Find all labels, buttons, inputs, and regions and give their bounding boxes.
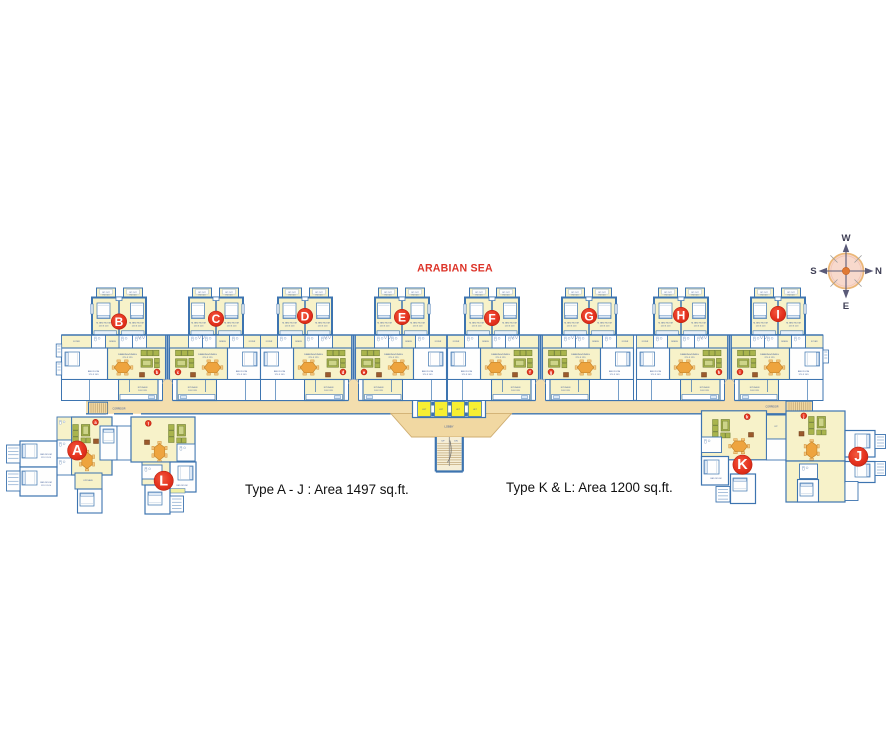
svg-text:Type A - J : Area 1497 sq.ft.: Type A - J : Area 1497 sq.ft. — [245, 482, 409, 497]
svg-text:SIT OUT: SIT OUT — [787, 292, 795, 294]
svg-text:M. BED ROOM: M. BED ROOM — [502, 323, 516, 325]
svg-text:KITCHEN: KITCHEN — [138, 387, 148, 389]
svg-text:12'0 X 10'0: 12'0 X 10'0 — [462, 374, 473, 376]
svg-text:b: b — [156, 370, 159, 375]
svg-text:E: E — [843, 301, 850, 312]
svg-text:CORRIDOR: CORRIDOR — [765, 406, 778, 409]
svg-text:FOYER: FOYER — [622, 341, 629, 343]
svg-text:SIT OUT: SIT OUT — [384, 292, 392, 294]
svg-text:KITCHEN: KITCHEN — [324, 387, 334, 389]
svg-text:DRAWING/DINING: DRAWING/DINING — [680, 353, 699, 356]
svg-text:8'0 X 4'0: 8'0 X 4'0 — [199, 295, 206, 297]
svg-text:12'0 X 10'0: 12'0 X 10'0 — [610, 374, 621, 376]
svg-text:BED ROOM: BED ROOM — [177, 485, 188, 487]
svg-text:I: I — [776, 308, 779, 322]
svg-text:DRESS: DRESS — [781, 341, 788, 343]
svg-text:SIT OUT: SIT OUT — [225, 292, 233, 294]
svg-text:UP: UP — [441, 441, 445, 443]
svg-text:BED ROOM: BED ROOM — [40, 482, 52, 484]
svg-text:FOYER: FOYER — [642, 341, 649, 343]
svg-text:SIT OUT: SIT OUT — [475, 292, 483, 294]
svg-text:SIT OUT: SIT OUT — [288, 292, 296, 294]
svg-text:DRAWING/DINING: DRAWING/DINING — [760, 353, 779, 356]
svg-text:N: N — [875, 266, 882, 277]
svg-text:KITCHEN: KITCHEN — [511, 387, 521, 389]
svg-text:C: C — [212, 312, 221, 326]
svg-text:8'0 X 4'0: 8'0 X 4'0 — [226, 295, 233, 297]
svg-text:KITCHEN: KITCHEN — [700, 387, 710, 389]
svg-text:E: E — [398, 311, 406, 325]
svg-text:h: h — [718, 370, 721, 375]
svg-text:12'0 X 11'0: 12'0 X 11'0 — [285, 325, 296, 327]
svg-text:M. BED ROOM: M. BED ROOM — [129, 323, 143, 325]
svg-text:KITCHEN: KITCHEN — [83, 480, 93, 482]
svg-text:8'0 X 4'0: 8'0 X 4'0 — [476, 295, 483, 297]
svg-text:8'0 X 4'0: 8'0 X 4'0 — [572, 295, 579, 297]
svg-text:FOYER: FOYER — [435, 341, 442, 343]
svg-text:g: g — [550, 370, 553, 375]
svg-text:12'0 X 11'0: 12'0 X 11'0 — [756, 325, 767, 327]
svg-text:12'0 X 11'0: 12'0 X 11'0 — [567, 325, 578, 327]
svg-text:KITCHEN: KITCHEN — [561, 387, 571, 389]
svg-text:H: H — [677, 309, 686, 323]
svg-text:22'0 X 12'0: 22'0 X 12'0 — [123, 357, 134, 359]
svg-text:A: A — [72, 443, 83, 459]
svg-text:SIT OUT: SIT OUT — [102, 292, 110, 294]
svg-text:10'0 X 8'0: 10'0 X 8'0 — [374, 390, 384, 392]
svg-text:LOBBY: LOBBY — [444, 425, 453, 429]
svg-text:Type K & L: Area 1200 sq.ft.: Type K & L: Area 1200 sq.ft. — [506, 480, 673, 495]
svg-text:M. BED ROOM: M. BED ROOM — [96, 323, 110, 325]
svg-text:KITCHEN: KITCHEN — [374, 387, 384, 389]
svg-text:DRESS: DRESS — [295, 341, 302, 343]
svg-text:12'0 X 10'0: 12'0 X 10'0 — [651, 374, 662, 376]
svg-text:BED ROOM: BED ROOM — [422, 371, 434, 373]
svg-text:FOYER: FOYER — [73, 341, 80, 343]
svg-text:10'0 X 8'0: 10'0 X 8'0 — [700, 390, 710, 392]
svg-text:BED ROOM: BED ROOM — [609, 371, 621, 373]
svg-text:SIT OUT: SIT OUT — [129, 292, 137, 294]
svg-text:M. BED ROOM: M. BED ROOM — [597, 323, 611, 325]
svg-text:22'0 X 12'0: 22'0 X 12'0 — [496, 357, 507, 359]
svg-text:K: K — [737, 457, 748, 473]
svg-text:BED ROOM: BED ROOM — [88, 371, 100, 373]
svg-text:8'0 X 4'0: 8'0 X 4'0 — [788, 295, 795, 297]
svg-text:KITCHEN: KITCHEN — [750, 387, 760, 389]
svg-text:L: L — [159, 473, 168, 489]
svg-text:12'0 X 11'0: 12'0 X 11'0 — [318, 325, 329, 327]
svg-text:12'0 X 11'0: 12'0 X 11'0 — [380, 325, 391, 327]
svg-text:DRESS: DRESS — [592, 341, 599, 343]
svg-text:DRESS: DRESS — [219, 341, 226, 343]
svg-text:BED ROOM: BED ROOM — [40, 454, 52, 456]
svg-text:SIT OUT: SIT OUT — [571, 292, 579, 294]
svg-text:M. BED ROOM: M. BED ROOM — [691, 323, 705, 325]
svg-text:M. BED ROOM: M. BED ROOM — [564, 323, 578, 325]
svg-text:M. BED ROOM: M. BED ROOM — [753, 323, 767, 325]
svg-text:j: j — [802, 414, 804, 419]
svg-text:M. BED ROOM: M. BED ROOM — [315, 323, 329, 325]
svg-text:M. BED ROOM: M. BED ROOM — [377, 323, 391, 325]
svg-text:DRAWING/DINING: DRAWING/DINING — [304, 353, 323, 356]
svg-text:22'0 X 12'0: 22'0 X 12'0 — [576, 357, 587, 359]
svg-text:l: l — [148, 421, 149, 426]
svg-text:12'0 X 10'0: 12'0 X 10'0 — [799, 374, 810, 376]
svg-text:12'0 X 11'0: 12'0 X 11'0 — [413, 325, 424, 327]
svg-text:KITCHEN: KITCHEN — [188, 387, 198, 389]
svg-text:12'0 X 10'0: 12'0 X 10'0 — [423, 374, 434, 376]
svg-text:10'0 X 8'0: 10'0 X 8'0 — [750, 390, 760, 392]
svg-text:FOYER: FOYER — [453, 341, 460, 343]
svg-text:DRESS: DRESS — [671, 341, 678, 343]
svg-text:8'0 X 4'0: 8'0 X 4'0 — [412, 295, 419, 297]
svg-text:F: F — [488, 312, 495, 326]
svg-text:M. BED ROOM: M. BED ROOM — [410, 323, 424, 325]
svg-text:12'0 X 11'0: 12'0 X 11'0 — [99, 325, 110, 327]
svg-text:8'0 X 4'0: 8'0 X 4'0 — [692, 295, 699, 297]
svg-text:FOYER: FOYER — [811, 341, 818, 343]
svg-text:10'0 X 8'0: 10'0 X 8'0 — [188, 390, 198, 392]
svg-text:BED ROOM: BED ROOM — [461, 371, 473, 373]
svg-text:12'0 X 10'0: 12'0 X 10'0 — [89, 374, 100, 376]
svg-text:12'0 X 11'0: 12'0 X 11'0 — [694, 325, 705, 327]
svg-text:12'0 X 11'0: 12'0 X 11'0 — [505, 325, 516, 327]
svg-text:FOYER: FOYER — [266, 341, 273, 343]
svg-text:SIT OUT: SIT OUT — [315, 292, 323, 294]
svg-text:8'0 X 4'0: 8'0 X 4'0 — [599, 295, 606, 297]
svg-text:12'0 X 10'0: 12'0 X 10'0 — [237, 374, 248, 376]
svg-text:B: B — [115, 315, 124, 329]
svg-text:DRESS: DRESS — [482, 341, 489, 343]
svg-text:12'0 X 11'0: 12'0 X 11'0 — [472, 325, 483, 327]
svg-text:8'0 X 4'0: 8'0 X 4'0 — [130, 295, 137, 297]
svg-text:10'0 X 8'0: 10'0 X 8'0 — [324, 390, 334, 392]
svg-text:DRAWING/DINING: DRAWING/DINING — [571, 353, 590, 356]
svg-text:DRAWING/DINING: DRAWING/DINING — [384, 353, 403, 356]
svg-text:12'0 X 11'0: 12'0 X 11'0 — [661, 325, 672, 327]
svg-text:10'0 X 8'0: 10'0 X 8'0 — [561, 390, 571, 392]
svg-text:12'0 X 11'0: 12'0 X 11'0 — [194, 325, 205, 327]
svg-text:12'0 X 11'0: 12'0 X 11'0 — [789, 325, 800, 327]
svg-text:8'0 X 4'0: 8'0 X 4'0 — [503, 295, 510, 297]
svg-text:d: d — [342, 370, 345, 375]
svg-text:BED ROOM: BED ROOM — [236, 371, 248, 373]
svg-text:BED ROOM: BED ROOM — [274, 371, 286, 373]
svg-text:M. BED ROOM: M. BED ROOM — [224, 323, 238, 325]
svg-text:DRESS: DRESS — [405, 341, 412, 343]
svg-text:G: G — [584, 310, 593, 324]
svg-text:SIT OUT: SIT OUT — [691, 292, 699, 294]
svg-text:DRESS: DRESS — [109, 341, 116, 343]
svg-text:12'0 X 10'0: 12'0 X 10'0 — [41, 485, 52, 487]
svg-text:M. BED ROOM: M. BED ROOM — [191, 323, 205, 325]
svg-text:12'0 X 11'0: 12'0 X 11'0 — [227, 325, 238, 327]
svg-text:12'0 X 10'0: 12'0 X 10'0 — [41, 457, 52, 459]
svg-text:DRAWING/DINING: DRAWING/DINING — [198, 353, 217, 356]
svg-text:CORRIDOR: CORRIDOR — [112, 408, 125, 411]
svg-text:SIT OUT: SIT OUT — [760, 292, 768, 294]
svg-text:8'0 X 4'0: 8'0 X 4'0 — [316, 295, 323, 297]
svg-text:22'0 X 12'0: 22'0 X 12'0 — [203, 357, 214, 359]
svg-text:8'0 X 4'0: 8'0 X 4'0 — [761, 295, 768, 297]
svg-text:22'0 X 12'0: 22'0 X 12'0 — [389, 357, 400, 359]
svg-text:10'0 X 8'0: 10'0 X 8'0 — [511, 390, 521, 392]
svg-text:8'0 X 4'0: 8'0 X 4'0 — [665, 295, 672, 297]
svg-text:SIT OUT: SIT OUT — [502, 292, 510, 294]
svg-text:i: i — [739, 370, 740, 375]
svg-text:M. BED ROOM: M. BED ROOM — [469, 323, 483, 325]
svg-text:M. BED ROOM: M. BED ROOM — [282, 323, 296, 325]
svg-text:DRAWING/DINING: DRAWING/DINING — [491, 353, 510, 356]
svg-text:M. BED ROOM: M. BED ROOM — [786, 323, 800, 325]
svg-text:12'0 X 11'0: 12'0 X 11'0 — [132, 325, 143, 327]
svg-text:10'0 X 8'0: 10'0 X 8'0 — [138, 390, 148, 392]
svg-text:D: D — [301, 310, 310, 324]
svg-text:SIT OUT: SIT OUT — [411, 292, 419, 294]
svg-text:BED ROOM: BED ROOM — [798, 371, 810, 373]
svg-text:S: S — [810, 266, 817, 277]
svg-text:BED ROOM: BED ROOM — [650, 371, 662, 373]
svg-text:SIT OUT: SIT OUT — [598, 292, 606, 294]
svg-text:SIT OUT: SIT OUT — [198, 292, 206, 294]
svg-text:8'0 X 4'0: 8'0 X 4'0 — [289, 295, 296, 297]
svg-text:22'0 X 12'0: 22'0 X 12'0 — [309, 357, 320, 359]
svg-text:DRAWING/DINING: DRAWING/DINING — [118, 353, 137, 356]
svg-text:FOYER: FOYER — [249, 341, 256, 343]
svg-text:8'0 X 4'0: 8'0 X 4'0 — [103, 295, 110, 297]
svg-text:12'0 X 11'0: 12'0 X 11'0 — [600, 325, 611, 327]
svg-text:ARABIAN SEA: ARABIAN SEA — [417, 263, 493, 275]
svg-text:BED ROOM: BED ROOM — [711, 478, 722, 480]
svg-text:22'0 X 12'0: 22'0 X 12'0 — [765, 357, 776, 359]
svg-text:J: J — [854, 449, 862, 465]
svg-text:8'0 X 4'0: 8'0 X 4'0 — [385, 295, 392, 297]
svg-text:SIT OUT: SIT OUT — [664, 292, 672, 294]
svg-text:12'0 X 10'0: 12'0 X 10'0 — [275, 374, 286, 376]
svg-text:M. BED ROOM: M. BED ROOM — [658, 323, 672, 325]
svg-text:22'0 X 12'0: 22'0 X 12'0 — [685, 357, 696, 359]
svg-text:DN: DN — [454, 441, 458, 443]
svg-text:W: W — [841, 233, 851, 244]
